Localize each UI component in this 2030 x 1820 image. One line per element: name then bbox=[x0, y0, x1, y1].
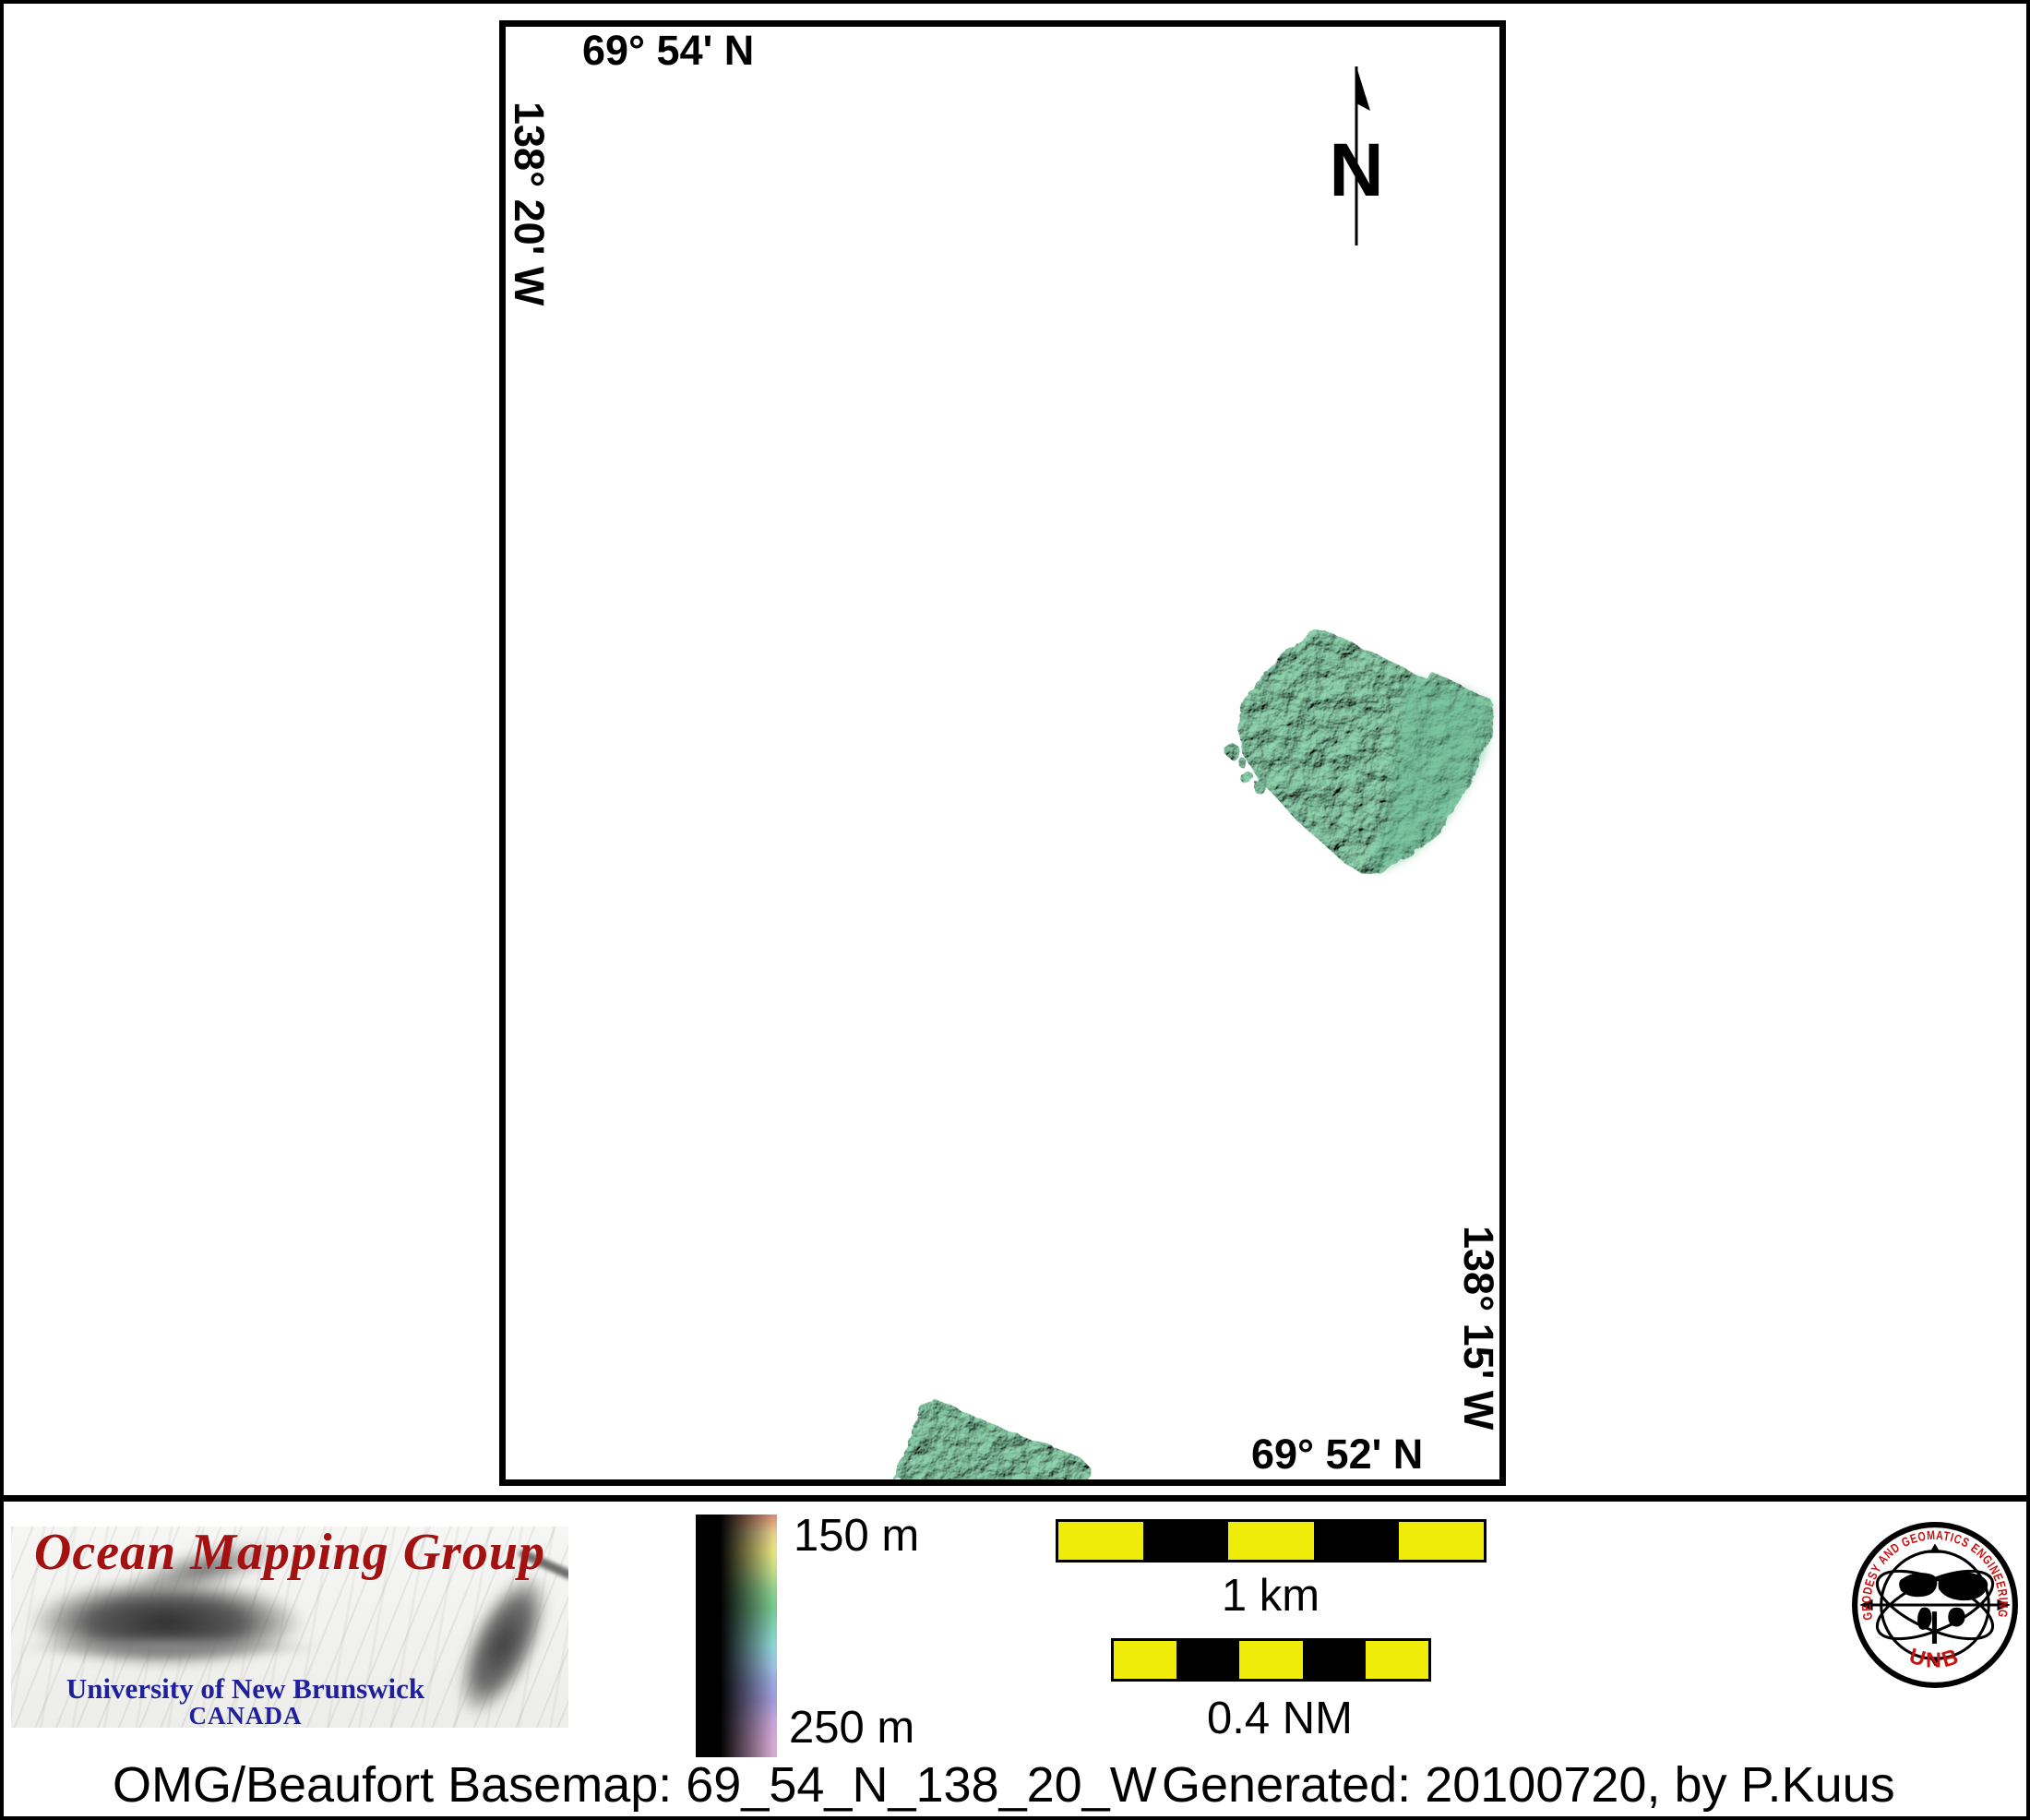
basemap-caption: OMG/Beaufort Basemap: 69_54_N_138_20_W bbox=[113, 1756, 1157, 1814]
scalebar-segment-yellow bbox=[1058, 1522, 1143, 1560]
seal-tick-north bbox=[1929, 1544, 1940, 1553]
scalebar-segment-yellow bbox=[1366, 1641, 1428, 1679]
omg-logo-banner: Ocean Mapping Group University of New Br… bbox=[11, 1527, 568, 1728]
scalebar-nautical-miles-label: 0.4 NM bbox=[1207, 1693, 1353, 1744]
north-arrow-flag bbox=[1356, 66, 1370, 111]
scalebar-segment-black bbox=[1303, 1641, 1366, 1679]
omg-university-label: University of New Brunswick bbox=[11, 1672, 524, 1706]
scalebar-segment-yellow bbox=[1399, 1522, 1484, 1560]
scalebar-segment-yellow bbox=[1228, 1522, 1313, 1560]
sidescan-seafloor-streak bbox=[17, 1635, 321, 1659]
depth-colorbar bbox=[696, 1515, 777, 1757]
basemap-sheet: 69° 54' N 138° 20' W 138° 15' W 69° 52' … bbox=[0, 0, 2030, 1820]
north-arrow: N bbox=[1321, 57, 1404, 255]
omg-title: Ocean Mapping Group bbox=[11, 1527, 568, 1582]
seal-globe-stand bbox=[1932, 1611, 1937, 1644]
depth-colorbar-max-label: 250 m bbox=[789, 1702, 914, 1754]
generated-caption: Generated: 20100720, by P.Kuus bbox=[1162, 1756, 1895, 1814]
longitude-label-left: 138° 20' W bbox=[505, 102, 553, 305]
scalebar-segment-yellow bbox=[1239, 1641, 1302, 1679]
seal-continent bbox=[1948, 1608, 1964, 1627]
panel-divider bbox=[4, 1495, 2030, 1502]
scalebar-nautical-miles bbox=[1111, 1638, 1431, 1682]
latitude-label-bottom: 69° 52' N bbox=[1251, 1431, 1423, 1479]
scalebar-kilometres bbox=[1056, 1519, 1487, 1563]
scalebar-segment-black bbox=[1176, 1641, 1239, 1679]
omg-country-label: CANADA bbox=[11, 1702, 524, 1728]
seal-unb-text: UNB bbox=[1906, 1644, 1964, 1672]
seal-continent bbox=[1939, 1572, 1988, 1600]
caption-row: OMG/Beaufort Basemap: 69_54_N_138_20_W G… bbox=[4, 1756, 2030, 1812]
latitude-label-top: 69° 54' N bbox=[582, 27, 754, 75]
scalebar-segment-yellow bbox=[1114, 1641, 1176, 1679]
scalebar-segment-black bbox=[1143, 1522, 1228, 1560]
scalebar-kilometres-label: 1 km bbox=[1222, 1570, 1319, 1622]
depth-colorbar-min-label: 150 m bbox=[794, 1510, 919, 1562]
unb-gge-seal: GEODESY AND GEOMATICS ENGINEERING UNB bbox=[1851, 1521, 2019, 1689]
seal-continent bbox=[1899, 1573, 1937, 1597]
seal-continent bbox=[1917, 1608, 1931, 1630]
scalebar-segment-black bbox=[1314, 1522, 1399, 1560]
longitude-label-right: 138° 15' W bbox=[1454, 1226, 1502, 1430]
north-arrow-letter: N bbox=[1329, 128, 1383, 212]
